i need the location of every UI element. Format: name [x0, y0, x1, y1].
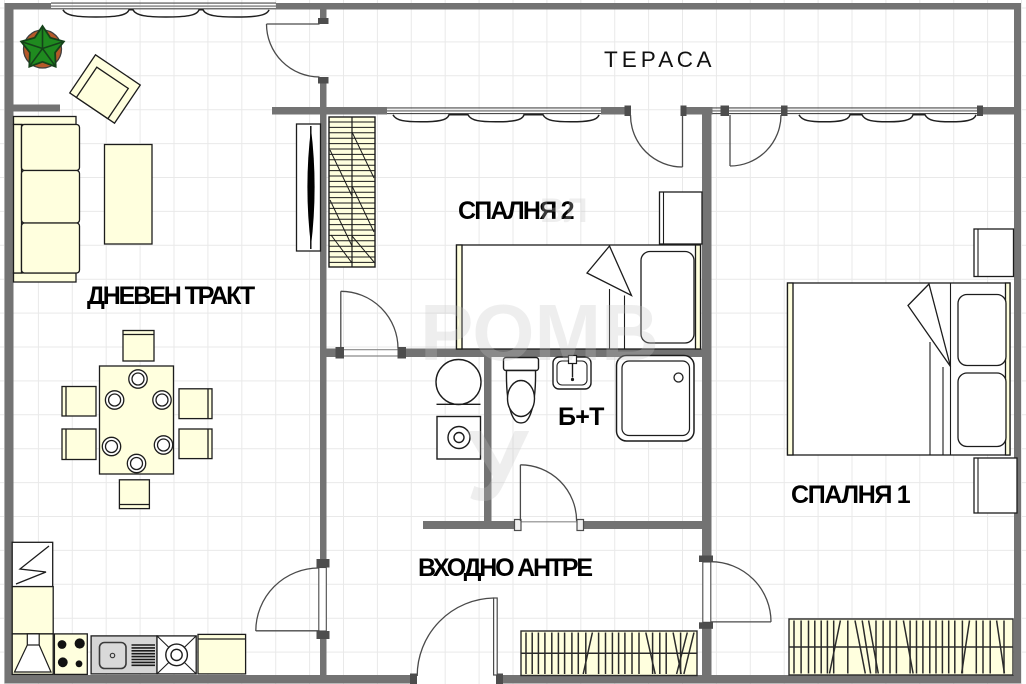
svg-text:СПАЛНЯ 1: СПАЛНЯ 1 [791, 481, 911, 509]
svg-text:РОМВ: РОМВ [420, 288, 659, 377]
svg-text:ВЛ: ВЛ [540, 192, 588, 230]
svg-text:ДНЕВЕН ТРАКТ: ДНЕВЕН ТРАКТ [87, 282, 255, 310]
svg-text:У: У [466, 410, 530, 522]
svg-text:ТЕРАСА: ТЕРАСА [604, 47, 716, 72]
svg-text:ВХОДНО АНТРЕ: ВХОДНО АНТРЕ [418, 554, 592, 582]
svg-text:Б+Т: Б+Т [558, 403, 604, 431]
